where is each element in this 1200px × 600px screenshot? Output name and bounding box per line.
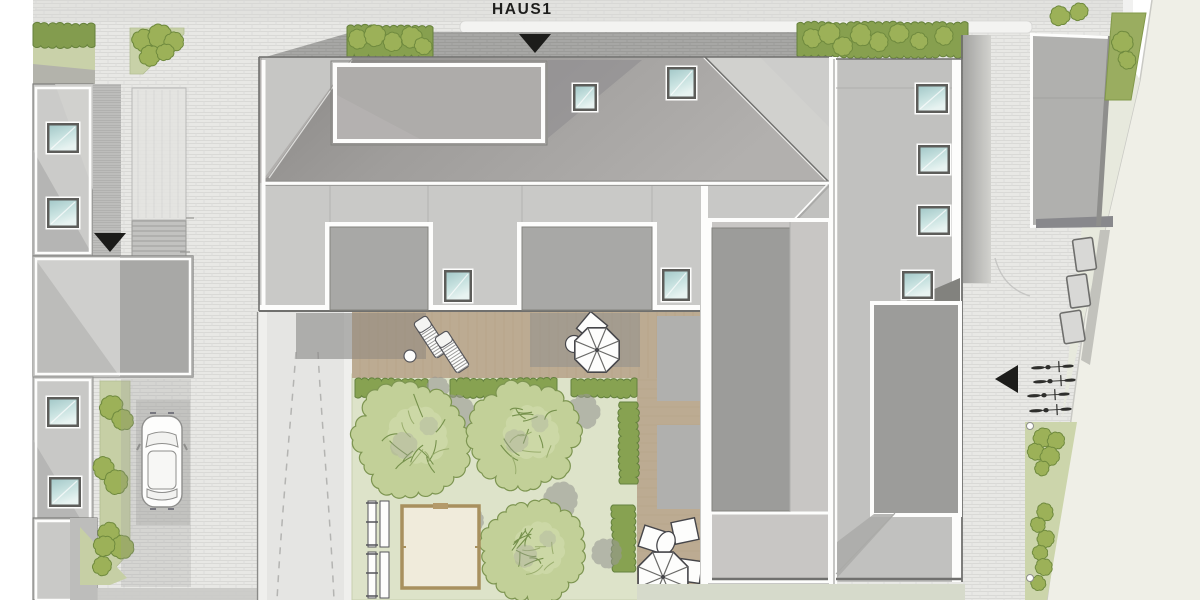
svg-text:HAUS1: HAUS1 xyxy=(492,1,553,18)
